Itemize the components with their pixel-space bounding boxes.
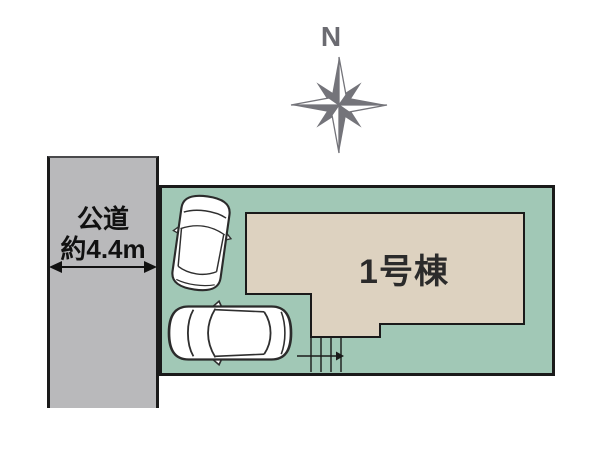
- car-icon-lower: [169, 301, 291, 365]
- site-plan: N: [0, 0, 600, 476]
- stairs-icon: [297, 338, 344, 372]
- plan-drawing: [0, 0, 600, 476]
- car-icon-upper: [166, 192, 237, 293]
- building-label: 1号棟: [329, 244, 479, 293]
